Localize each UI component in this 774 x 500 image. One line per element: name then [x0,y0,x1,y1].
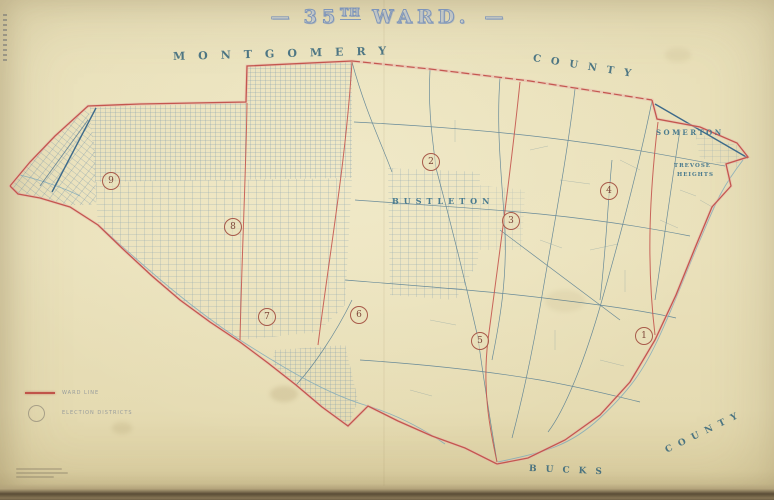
plate-margin-text [3,14,7,62]
place-label-trevose: TREVOSE [674,163,711,169]
district-marker-8: 8 [224,218,242,236]
legend-ward-line-swatch [25,392,55,394]
ward-word: WARD. [361,6,471,28]
district-marker-1: 1 [635,327,653,345]
legend-district-circle-swatch [28,405,45,422]
district-marker-3: 3 [502,212,520,230]
atlas-page: —35TH WARD.— MONTGOMERY COUNTY BUCKS COU… [0,0,774,500]
ward-number: 35 [304,6,340,28]
district-marker-2: 2 [422,153,440,171]
place-label-heights: HEIGHTS [677,172,714,178]
roads [296,62,725,462]
paper-stain [545,290,585,312]
ward-ordinal: TH [340,6,361,20]
faint-attribution-line [16,476,54,478]
paper-stain [270,386,298,402]
map-title: —35TH WARD.— [0,6,774,28]
paper-stain [112,422,132,434]
district-marker-4: 4 [600,182,618,200]
district-marker-6: 6 [350,306,368,324]
district-marker-7: 7 [258,308,276,326]
faint-attribution-line [16,468,62,470]
title-dash-right: — [470,6,517,28]
district-marker-9: 9 [102,172,120,190]
place-label-somerton: SOMERTON [656,128,724,137]
legend-ward-line-label: WARD LINE [62,390,99,396]
paper-stain [665,48,691,62]
title-dash-left: — [257,6,304,28]
faint-attribution-line [16,472,68,474]
page-fold [383,0,385,486]
place-label-bustleton: BUSTLETON [392,196,494,206]
page-bottom-edge [0,484,774,500]
district-marker-5: 5 [471,332,489,350]
legend-districts-label: ELECTION DISTRICTS [62,410,133,416]
